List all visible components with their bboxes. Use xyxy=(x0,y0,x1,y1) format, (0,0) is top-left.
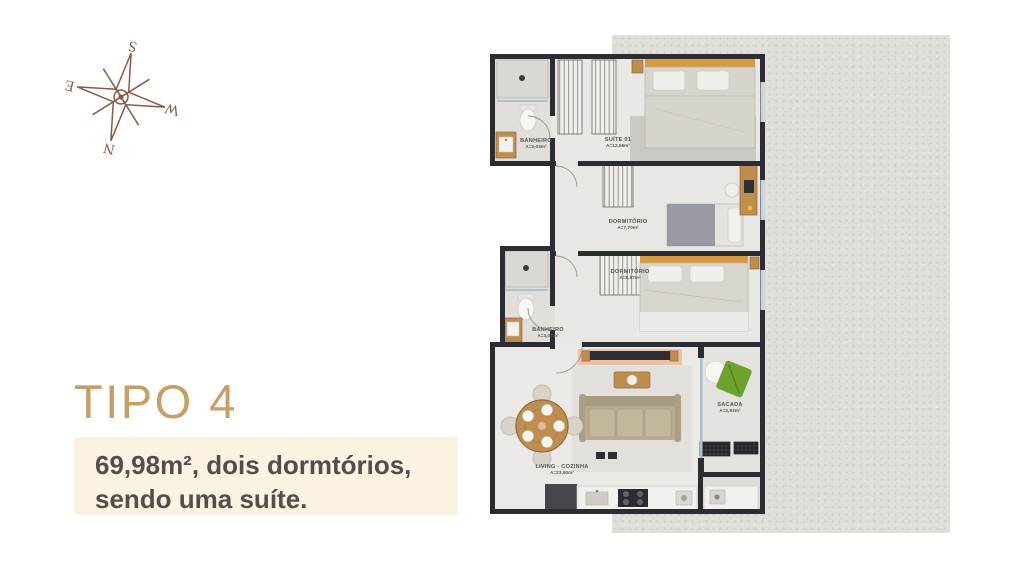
sacada-grille-1 xyxy=(700,442,730,456)
suite-wardrobe-2 xyxy=(592,60,616,134)
suite-wardrobe-1 xyxy=(558,60,582,134)
plan-description-line1: 69,98m², dois dormtórios, xyxy=(95,448,458,482)
floor-plan: BANHEIRO A=2,03m² SUÍTE 01 A=12,56m² DOR… xyxy=(490,54,765,520)
toilet-2 xyxy=(518,298,534,320)
window-suite xyxy=(761,82,766,122)
sacada-grille-2 xyxy=(734,442,758,454)
page: N E S W TIPO 4 69,98m², dois dormtórios,… xyxy=(0,0,1024,576)
plan-description-box: 69,98m², dois dormtórios, sendo uma suít… xyxy=(74,437,458,515)
dorm1-wardrobe xyxy=(603,165,633,207)
stove xyxy=(618,489,648,507)
dorm2-headboard xyxy=(640,255,748,263)
fridge xyxy=(545,484,577,510)
window-dorm2 xyxy=(761,270,766,310)
toilet-1 xyxy=(520,109,536,131)
plan-description-line2: sendo uma suíte. xyxy=(95,482,458,516)
suite-nightstand xyxy=(632,60,643,73)
area-living: A=23,90m² xyxy=(550,470,574,475)
compass-w-label: W xyxy=(163,99,180,118)
window-dorm1 xyxy=(761,180,766,220)
label-dormitorio-2: DORMITÓRIO xyxy=(611,267,650,275)
suite-headboard xyxy=(645,58,755,67)
sacada-glass-door xyxy=(700,358,703,458)
compass-rose-icon: N E S W xyxy=(62,38,180,156)
dorm1-chair xyxy=(725,183,739,197)
tv xyxy=(590,351,670,360)
compass-s-label: S xyxy=(127,38,139,55)
area-dormitorio-2: A=8,97m² xyxy=(619,275,641,280)
area-dormitorio-1: A=7,70m² xyxy=(617,225,639,230)
kitchen-sink xyxy=(586,492,608,505)
area-suite: A=12,56m² xyxy=(606,143,630,148)
area-banheiro-2: A=3,01m² xyxy=(537,333,559,338)
plan-title: TIPO 4 xyxy=(74,374,238,429)
area-banheiro-suite: A=2,03m² xyxy=(525,144,547,149)
dorm2-nightstand xyxy=(750,257,759,269)
area-sacada: A=2,92m² xyxy=(719,408,741,413)
compass-e-label: E xyxy=(64,76,77,94)
label-suite: SUÍTE 01 xyxy=(605,135,631,143)
kitchen xyxy=(545,484,758,510)
compass-n-label: N xyxy=(102,139,116,156)
label-dormitorio-1: DORMITÓRIO xyxy=(609,217,648,225)
